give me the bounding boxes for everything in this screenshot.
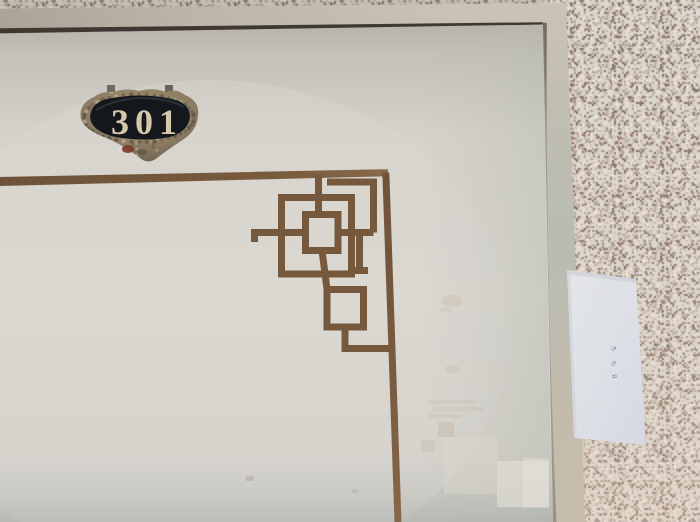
svg-text:301: 301 xyxy=(111,102,183,142)
